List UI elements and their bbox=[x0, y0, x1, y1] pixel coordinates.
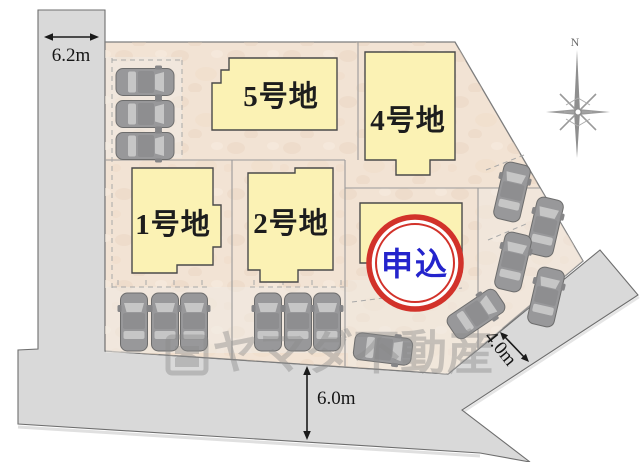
application-stamp: 申込 bbox=[369, 217, 461, 309]
plot-label-2: 2号地 bbox=[253, 207, 329, 240]
plot-label-1: 1号地 bbox=[135, 208, 211, 241]
car bbox=[116, 66, 174, 99]
compass-north-label: N bbox=[571, 35, 580, 49]
compass-needle bbox=[574, 50, 580, 158]
plot-label-5: 5号地 bbox=[243, 80, 319, 113]
watermark-text: ヤマダ不動産 bbox=[212, 326, 494, 379]
watermark-logo-glyph bbox=[175, 346, 199, 367]
compass-hub bbox=[575, 109, 581, 115]
site-plan: 5号地 4号地 1号地 2号地 bbox=[0, 0, 640, 462]
car bbox=[149, 293, 182, 351]
site-plan-svg: 5号地 4号地 1号地 2号地 bbox=[0, 0, 640, 462]
plot-label-4: 4号地 bbox=[370, 104, 446, 137]
car bbox=[116, 98, 174, 131]
car bbox=[118, 293, 151, 351]
car bbox=[116, 130, 174, 163]
watermark: ヤマダ不動産 bbox=[168, 326, 494, 379]
bottom-road-width-label: 6.0m bbox=[317, 388, 356, 409]
left-road-width-label: 6.2m bbox=[52, 45, 91, 66]
stamp-text: 申込 bbox=[381, 246, 449, 282]
compass-rose-icon: N bbox=[546, 35, 610, 158]
